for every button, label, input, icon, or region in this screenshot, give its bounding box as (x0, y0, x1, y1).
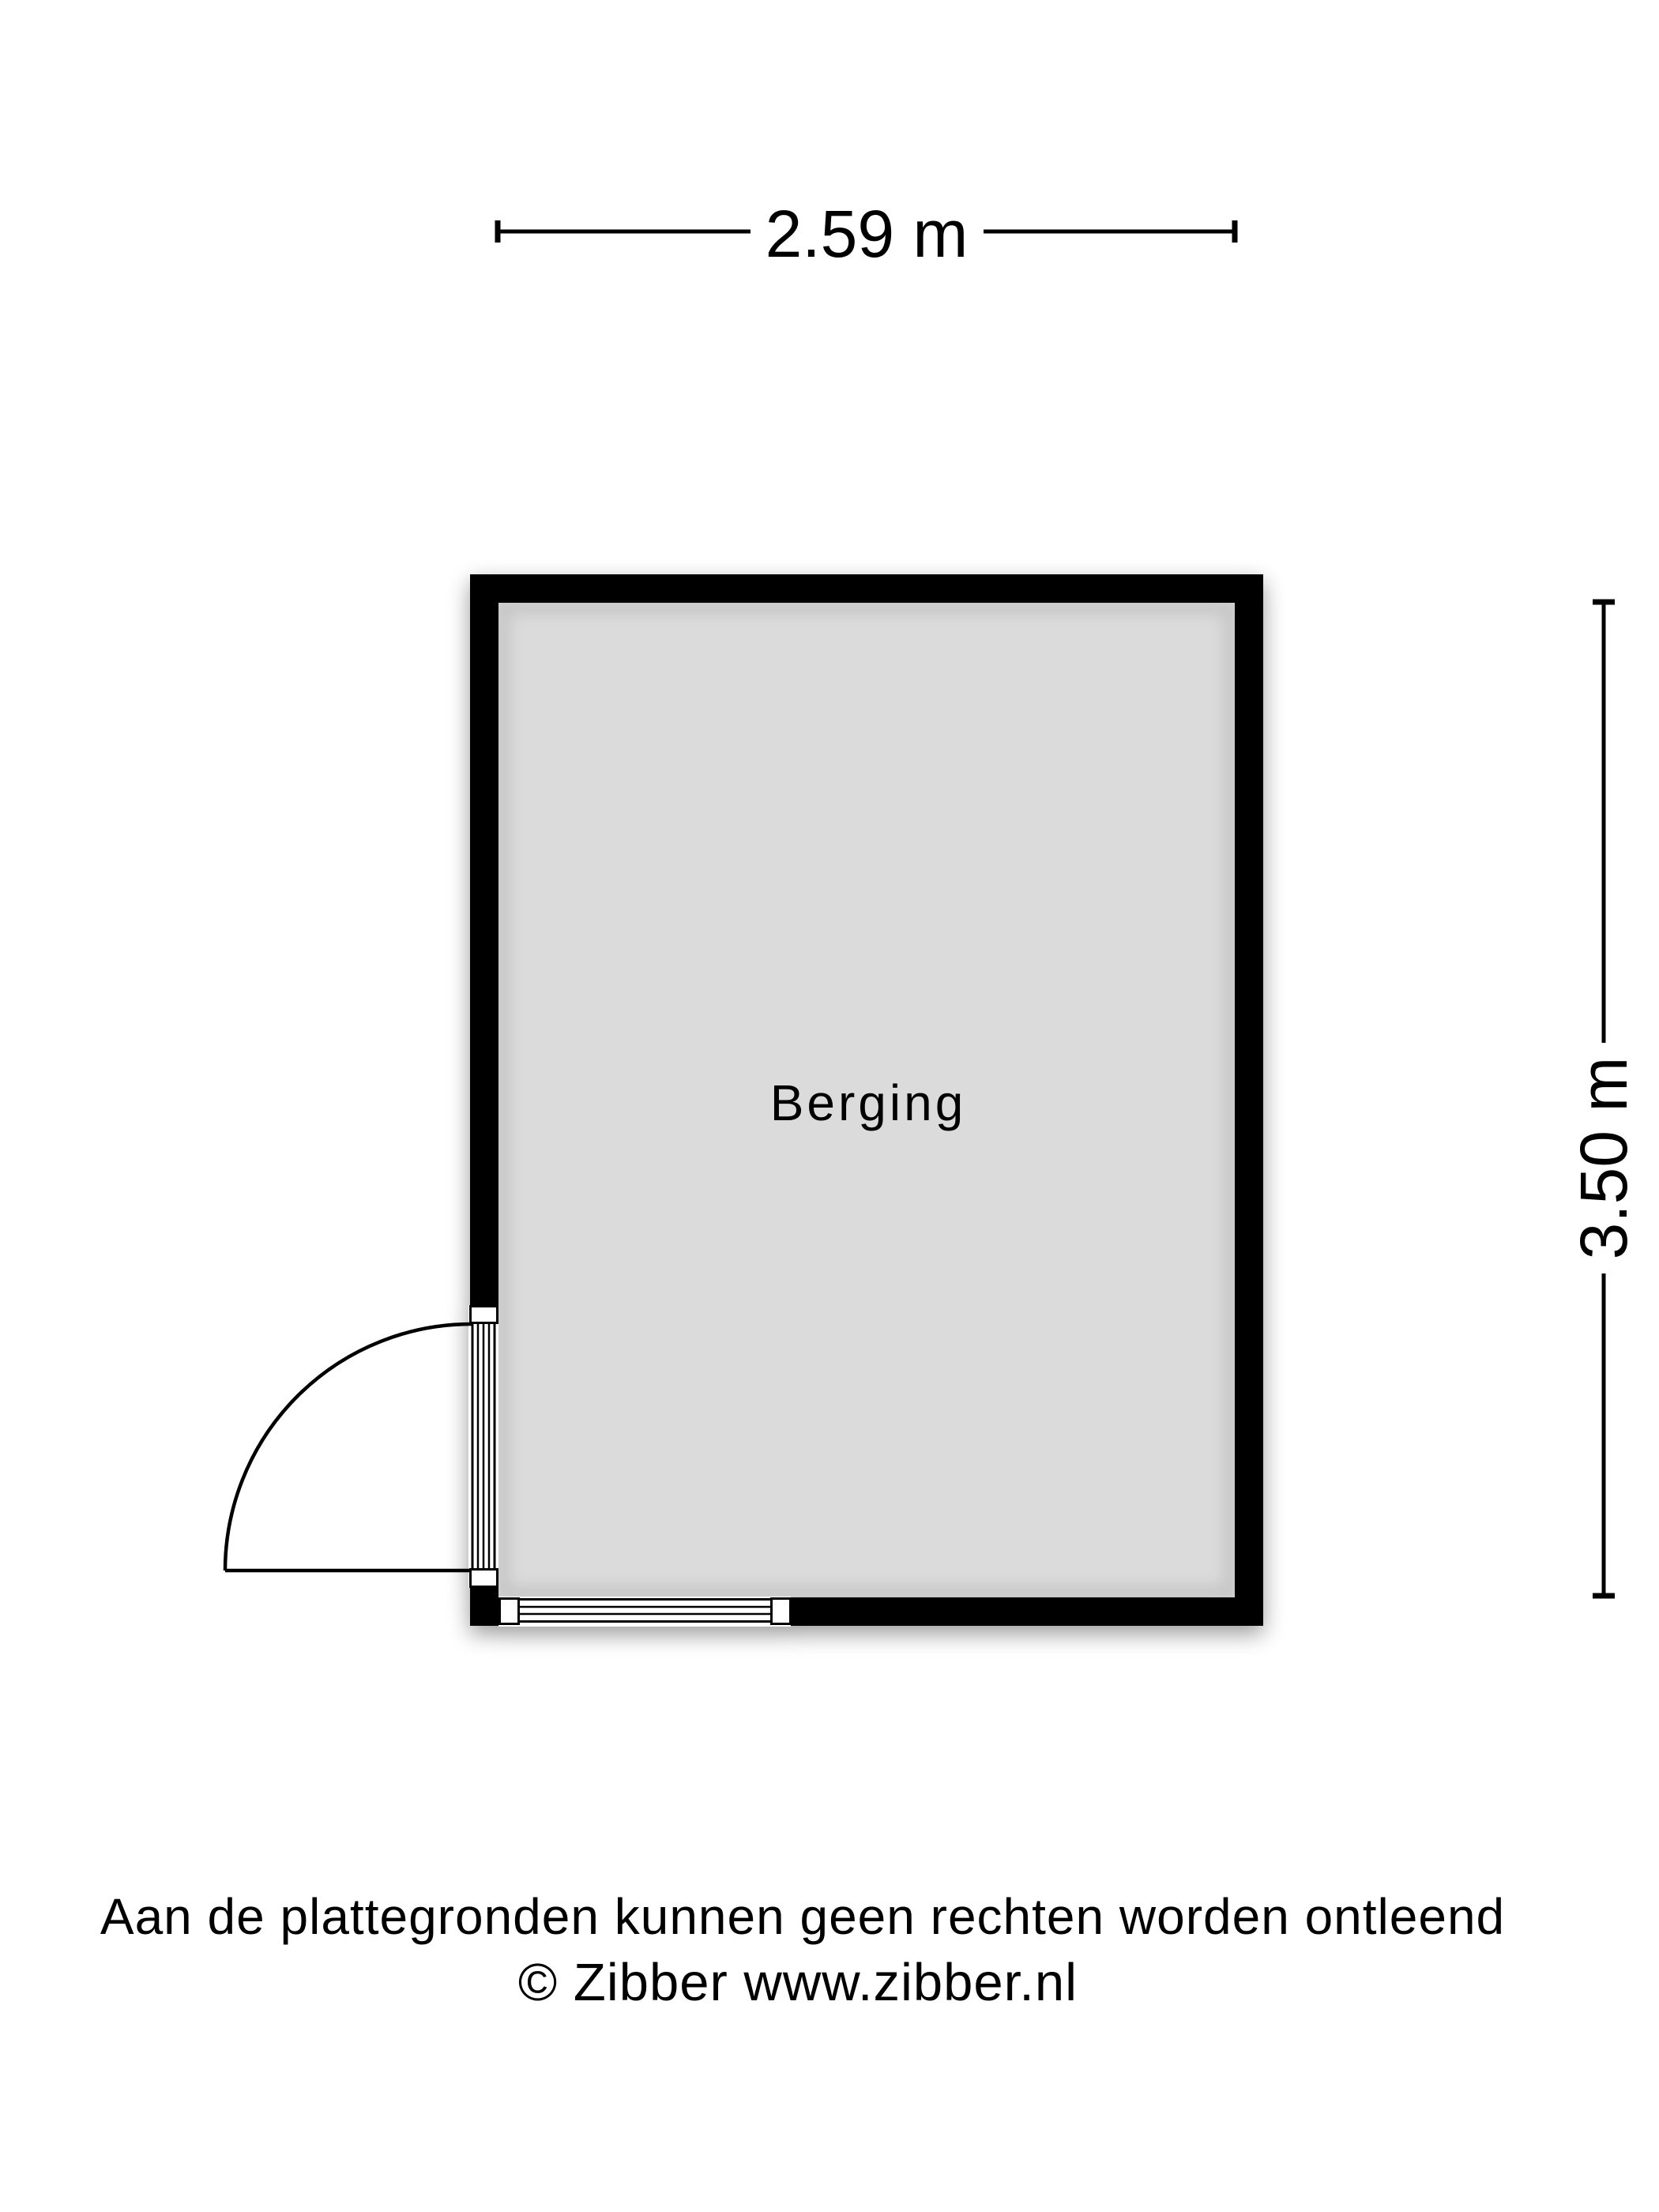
window-frame (519, 1600, 772, 1622)
footer: Aan de plattegronden kunnen geen rechten… (100, 1888, 1505, 2012)
window-jamb-right (772, 1599, 791, 1624)
copyright-text: © Zibber www.zibber.nl (518, 1953, 1078, 2012)
width-dimension-label: 2.59 m (766, 197, 969, 271)
top-dimension: 2.59 m (498, 197, 1235, 271)
window (498, 1597, 791, 1627)
height-dimension-label: 3.50 m (1567, 1057, 1641, 1260)
right-dimension: 3.50 m (1567, 602, 1641, 1596)
door-opening (468, 1305, 498, 1588)
floorplan-canvas: 2.59 m 3.50 m (0, 0, 1659, 2212)
door-panel (472, 1323, 495, 1570)
door-swing (225, 1324, 472, 1571)
window-jamb-left (500, 1599, 519, 1624)
door-jamb-bottom (471, 1570, 498, 1587)
door-swing-arc (225, 1324, 472, 1571)
room-label: Berging (770, 1074, 967, 1131)
door-jamb-top (471, 1307, 498, 1323)
disclaimer-text: Aan de plattegronden kunnen geen rechten… (100, 1888, 1505, 1945)
window-panes (519, 1600, 772, 1622)
room-berging: Berging (468, 574, 1263, 1627)
